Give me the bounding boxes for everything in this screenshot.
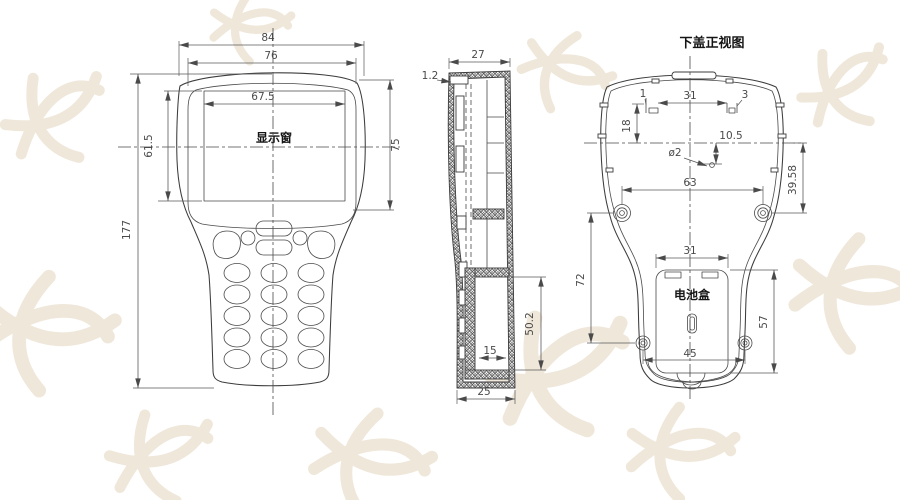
soft-key-right (308, 231, 335, 259)
dim-15: 15 (483, 345, 496, 357)
screw-boss-lower-left (636, 336, 650, 350)
front-lip (450, 76, 468, 84)
battery-contact (665, 272, 681, 278)
dim-63: 63 (683, 177, 696, 189)
screw-boss-upper-left (614, 205, 631, 222)
battery-box-label: 电池盒 (674, 287, 711, 302)
key (298, 350, 324, 369)
dim-1-2: 1.2 (422, 70, 439, 82)
dim-hole-dia: ø2 (668, 147, 681, 159)
dim-10-5: 10.5 (719, 130, 742, 142)
internal-ribs (487, 117, 504, 173)
small-hole (710, 163, 715, 168)
dim-76: 76 (264, 50, 278, 62)
dim-84: 84 (261, 32, 275, 44)
key (224, 328, 250, 347)
dim-25: 25 (477, 386, 490, 398)
technical-drawing: 显示窗 (0, 0, 900, 500)
top-tab (672, 72, 716, 79)
key (261, 307, 287, 326)
dim-75: 75 (390, 138, 402, 151)
rib-section (473, 209, 504, 219)
dim-177: 177 (121, 220, 133, 240)
key (298, 328, 324, 347)
nav-left-key (241, 231, 255, 245)
battery-compartment-section (465, 268, 509, 379)
dim-61-5: 61.5 (143, 134, 155, 157)
key (298, 264, 324, 283)
drawing-canvas: 显示窗 (0, 0, 900, 500)
dim-31-battery: 31 (683, 245, 696, 257)
key (224, 264, 250, 283)
dim-57: 57 (758, 315, 770, 328)
dim-50-2: 50.2 (524, 312, 536, 335)
dim-1-clip: 1 (640, 88, 647, 100)
key (224, 285, 250, 304)
battery-box: 电池盒 (656, 270, 728, 385)
display-window (204, 91, 345, 201)
key (224, 350, 250, 369)
front-body-outline (177, 73, 366, 386)
dim-31-clips: 31 (683, 90, 696, 102)
dim-45: 45 (683, 348, 696, 360)
dim-67-5: 67.5 (251, 91, 274, 103)
nav-down-key (256, 240, 292, 255)
display-window-label: 显示窗 (256, 130, 292, 145)
battery-contact (702, 272, 718, 278)
key (261, 328, 287, 347)
dim-3-clip: 3 (742, 89, 749, 101)
key (224, 307, 250, 326)
keypad-grid (224, 264, 324, 369)
dim-27: 27 (471, 49, 484, 61)
soft-key-left (213, 231, 240, 259)
dim-72: 72 (575, 273, 587, 286)
key (261, 350, 287, 369)
dim-18: 18 (621, 119, 633, 132)
key (298, 285, 324, 304)
key (261, 285, 287, 304)
front-bezel-inner (188, 83, 356, 228)
dim-39-58: 39.58 (787, 165, 799, 195)
bottom-view-title: 下盖正视图 (679, 35, 744, 51)
key (298, 307, 324, 326)
nav-right-key (293, 231, 307, 245)
front-view: 显示窗 (118, 28, 402, 416)
key (261, 264, 287, 283)
